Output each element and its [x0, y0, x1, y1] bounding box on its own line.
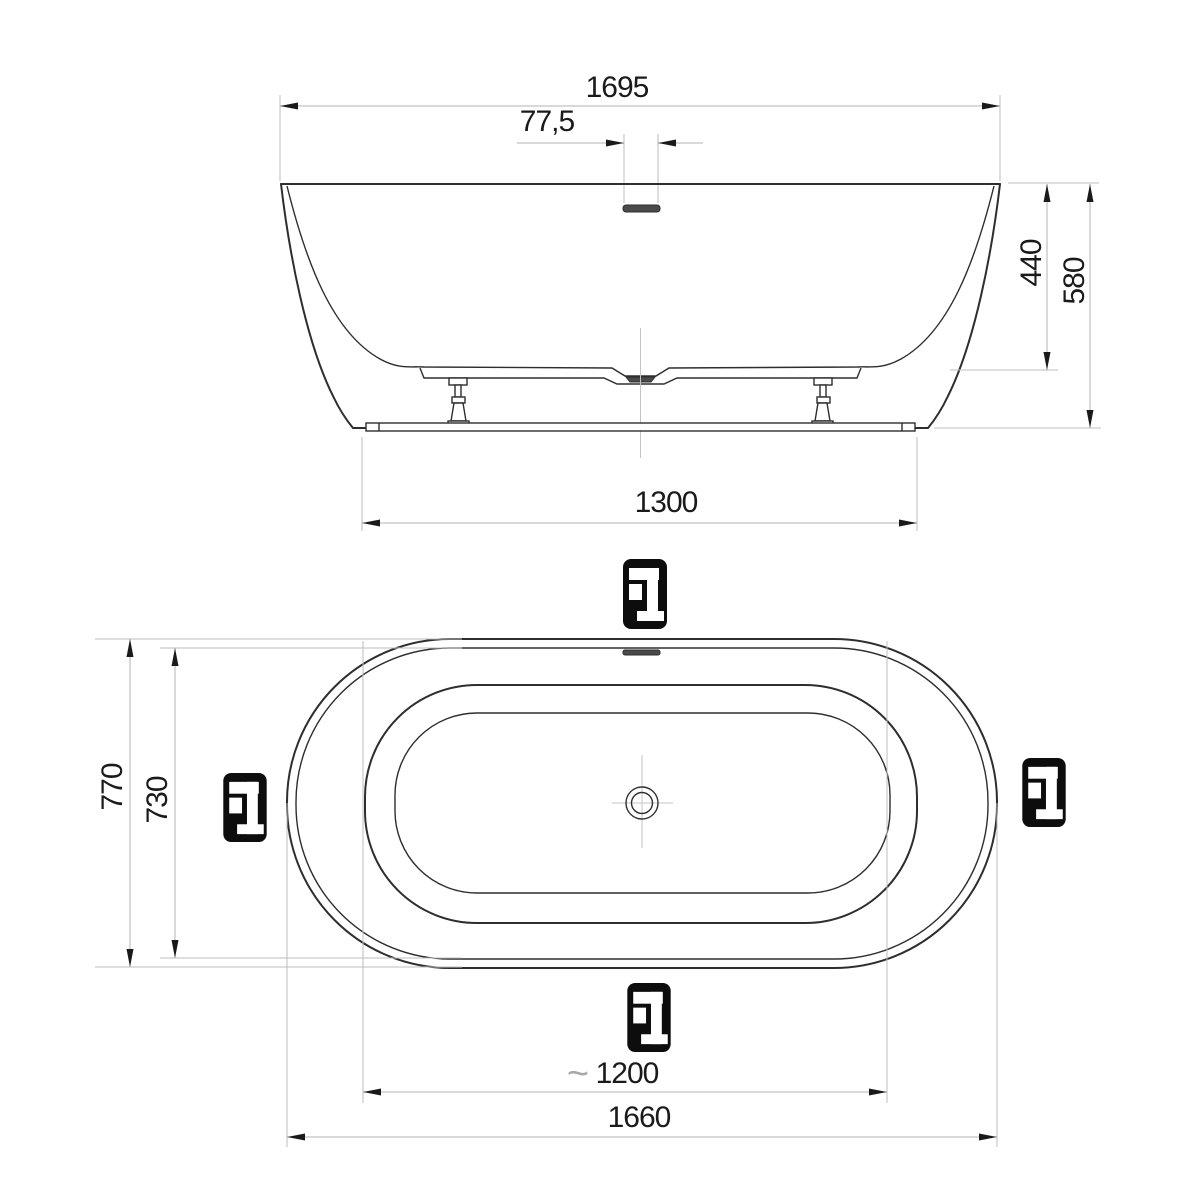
- technical-drawing: 1695 77,5: [0, 0, 1200, 1200]
- plan-view: 770 730 ~ 1200 1660: [95, 559, 1066, 1147]
- arrow-right-icon: [982, 103, 1000, 110]
- arrow-left-icon: [362, 520, 380, 527]
- arrow-up-icon: [172, 648, 179, 666]
- arrow-down-icon: [127, 949, 134, 967]
- dim-label-77-5: 77,5: [520, 105, 575, 138]
- dim-label-1200: 1200: [596, 1057, 659, 1090]
- dim-label-580: 580: [1058, 257, 1091, 304]
- dim-label-440: 440: [1015, 239, 1048, 286]
- overflow-slot: [623, 205, 660, 212]
- dimension-base-length-1300: 1300: [362, 437, 917, 531]
- drain: [612, 755, 673, 848]
- dimension-overall-length-1695: 1695: [280, 71, 1000, 181]
- dim-label-1695: 1695: [586, 71, 649, 104]
- arrow-right-icon: [869, 1089, 887, 1096]
- dimension-rim-width-730: 730: [141, 648, 462, 958]
- approx-tilde: ~: [567, 1053, 589, 1095]
- bathtub-plan-outline: [287, 639, 997, 968]
- arrow-right-icon: [979, 1134, 997, 1141]
- arrow-left-icon: [287, 1134, 305, 1141]
- tub-outer-wall-right: [915, 184, 1000, 428]
- faucet-position-icon-top: [623, 559, 667, 629]
- arrow-down-icon: [1087, 410, 1094, 428]
- arrow-up-icon: [1044, 184, 1051, 202]
- overflow-slot-plan: [623, 650, 660, 655]
- arrow-left-icon: [658, 140, 676, 147]
- arrow-left-icon: [363, 1089, 381, 1096]
- arrow-right-icon: [899, 520, 917, 527]
- arrow-left-icon: [280, 103, 298, 110]
- dimension-overall-length-1660: 1660: [287, 803, 997, 1147]
- arrow-up-icon: [127, 639, 134, 657]
- arrow-up-icon: [1087, 184, 1094, 202]
- dim-label-770: 770: [96, 763, 129, 810]
- adjustable-foot-left: [448, 378, 469, 429]
- faucet-position-icon-left: [223, 773, 266, 842]
- dimension-overflow-offset-77-5: 77,5: [517, 105, 703, 203]
- dim-label-730: 730: [141, 776, 174, 823]
- arrow-down-icon: [1044, 352, 1051, 370]
- faucet-position-icon-bottom: [627, 983, 670, 1052]
- drawing-canvas: 1695 77,5: [0, 0, 1200, 1200]
- dimension-inner-length-1200: ~ 1200: [363, 641, 887, 1103]
- dimension-height-580: 580: [934, 184, 1101, 428]
- base-plate: [366, 423, 915, 431]
- tub-outer-wall-left: [281, 184, 366, 428]
- arrow-down-icon: [172, 940, 179, 958]
- bathtub-side-profile: [281, 184, 1000, 458]
- faucet-position-icon-right: [1022, 758, 1065, 827]
- adjustable-foot-right: [812, 378, 833, 429]
- dim-label-1660: 1660: [608, 1101, 671, 1134]
- arrow-right-icon: [606, 140, 624, 147]
- side-view: 1695 77,5: [280, 71, 1101, 531]
- dim-label-1300: 1300: [635, 486, 698, 519]
